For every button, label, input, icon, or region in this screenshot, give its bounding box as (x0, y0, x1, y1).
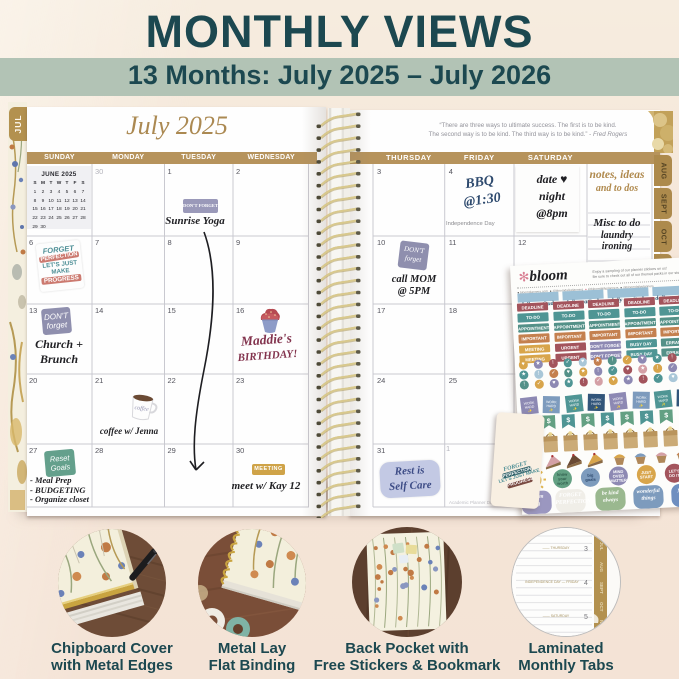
svg-text:$: $ (605, 415, 609, 422)
svg-text:—— SATURDAY: —— SATURDAY (543, 614, 570, 618)
svg-text:DO IT: DO IT (669, 473, 679, 479)
svg-text:4: 4 (584, 580, 588, 587)
svg-text:3: 3 (584, 546, 588, 553)
svg-text:NOV: NOV (599, 620, 604, 630)
svg-text:$: $ (625, 414, 629, 421)
svg-text:JUL: JUL (599, 542, 604, 551)
svg-text:$: $ (566, 417, 570, 424)
svg-text:$: $ (664, 412, 668, 419)
svg-text:5: 5 (584, 614, 588, 621)
svg-text:—— THURSDAY: —— THURSDAY (543, 546, 571, 550)
svg-text:$: $ (586, 416, 590, 423)
svg-text:INDEPENDENCE DAY — FRIDAY: INDEPENDENCE DAY — FRIDAY (525, 580, 579, 584)
svg-text:$: $ (547, 418, 551, 425)
svg-text:MATTER: MATTER (610, 477, 627, 483)
svg-text:$: $ (645, 413, 649, 420)
svg-text:SEPT: SEPT (599, 582, 604, 594)
svg-text:AUG: AUG (599, 562, 604, 572)
svg-text:START: START (640, 474, 654, 480)
svg-text:goals: goals (585, 477, 596, 483)
svg-text:OCT: OCT (599, 602, 604, 612)
svg-text:worth: worth (556, 480, 569, 486)
